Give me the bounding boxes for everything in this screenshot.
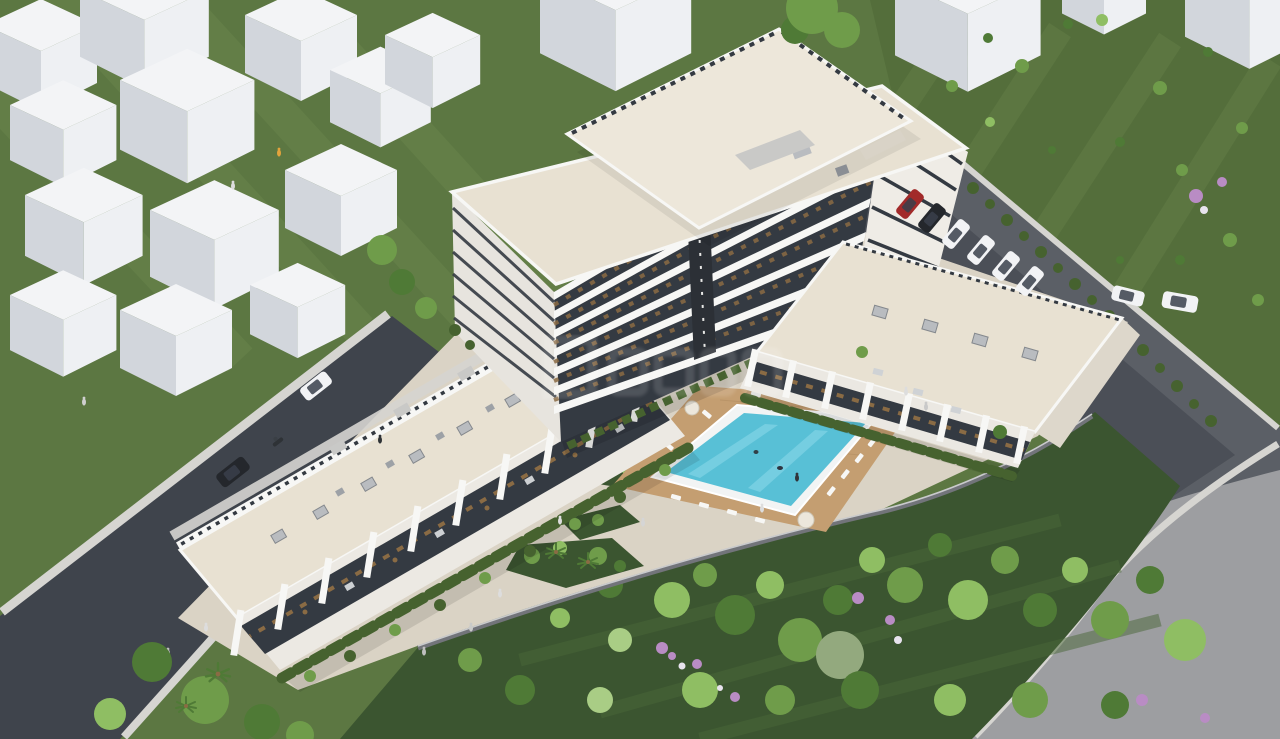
aerial-render: Aerial render: apartment tower with terr… [0,0,1280,739]
render-canvas: Aerial render: apartment tower with terr… [0,0,1280,739]
